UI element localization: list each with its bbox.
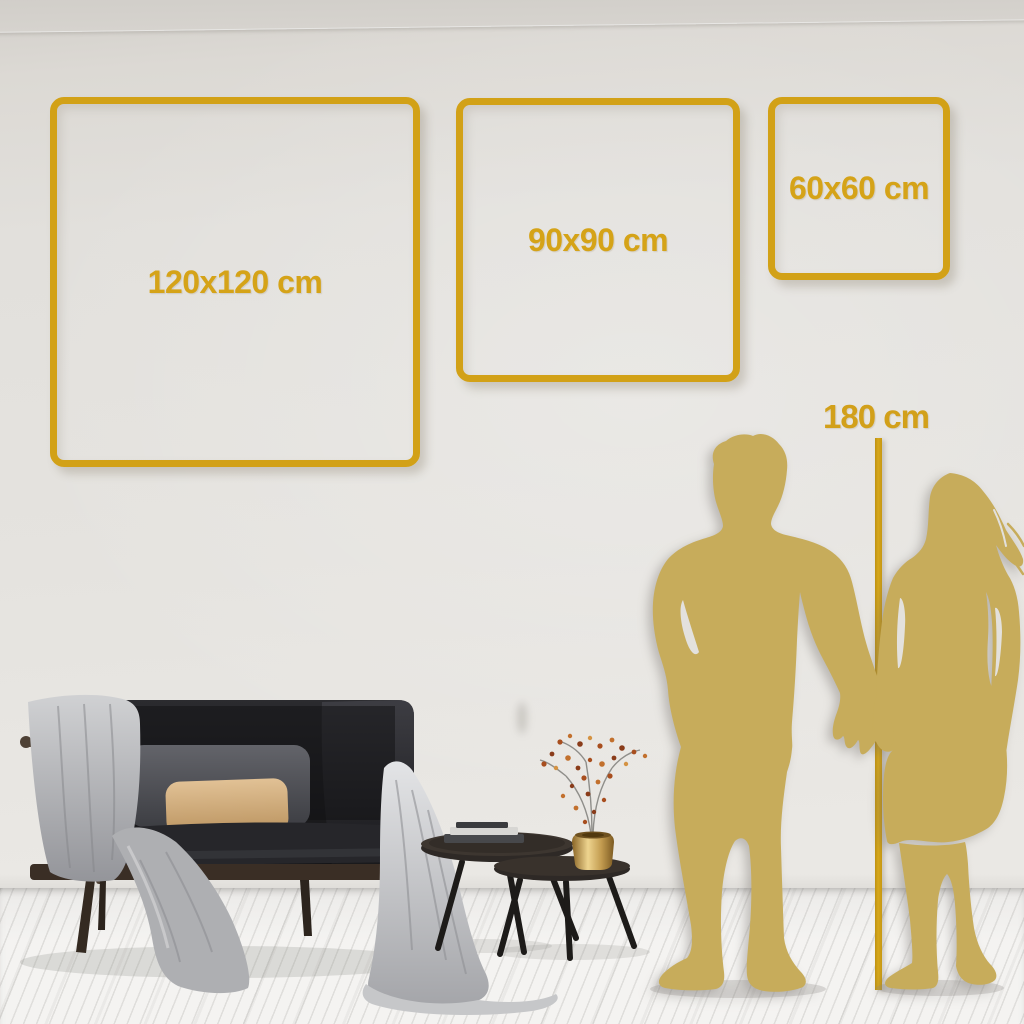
size-guide-scene: 120x120 cm 90x90 cm 60x60 cm (0, 0, 1024, 1024)
size-label-120x120: 120x120 cm (148, 264, 323, 301)
sofa-leg (98, 880, 106, 930)
size-frame-60x60: 60x60 cm (768, 97, 950, 280)
dowel-end-cap (20, 736, 32, 748)
book-dark (444, 834, 524, 843)
couple-silhouette (630, 425, 1024, 1024)
height-reference-label: 180 cm (776, 398, 976, 436)
white-drape (368, 761, 489, 1006)
sofa-and-tables-illustration (0, 678, 665, 1024)
book-small (456, 822, 508, 828)
dried-branch (540, 742, 640, 834)
woman-legs (885, 842, 996, 990)
sofa-leg (76, 880, 95, 953)
vase-opening (582, 833, 604, 837)
book-light (450, 827, 518, 835)
size-frame-120x120: 120x120 cm (50, 97, 420, 467)
brass-vase (572, 834, 614, 870)
size-label-90x90: 90x90 cm (528, 222, 668, 259)
sofa-leg (300, 880, 312, 936)
size-frame-90x90: 90x90 cm (456, 98, 740, 382)
size-label-60x60: 60x60 cm (789, 170, 929, 207)
man-silhouette (653, 434, 885, 992)
